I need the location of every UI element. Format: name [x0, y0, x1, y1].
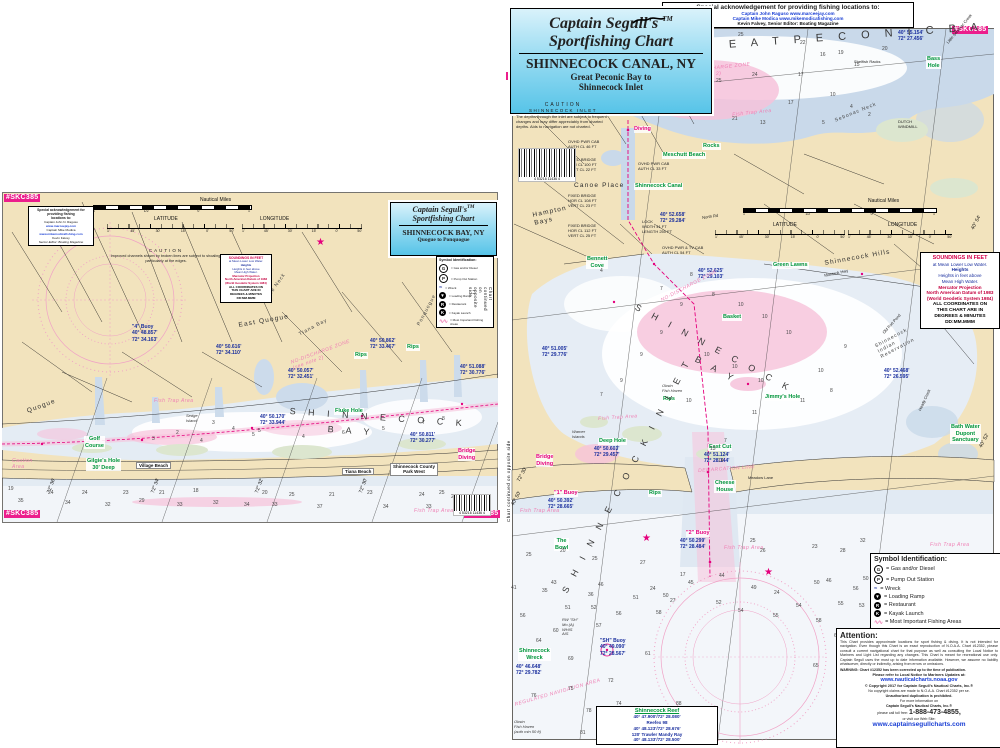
- kayak-launch-icon: K: [439, 309, 446, 316]
- scale-tick: 50': [229, 229, 234, 233]
- scale-lat-label: LATITUDE: [154, 216, 178, 222]
- caution-body: Improved channels shown by broken lines …: [110, 254, 222, 264]
- attention-body: This Chart provides approximate location…: [840, 640, 998, 667]
- scale-tick: 15': [908, 235, 913, 239]
- restaurant-icon: R: [439, 301, 446, 308]
- symbol-row: ≈= Wreck: [874, 586, 998, 592]
- scale-tick: 0: [871, 212, 873, 216]
- right-chart-subtitle: Great Peconic Bay to: [511, 72, 711, 82]
- gas-icon: G: [874, 565, 883, 574]
- symbol-label: = Pump Out Station: [886, 577, 934, 583]
- scale-tick: 1': [715, 235, 718, 239]
- scale-tick: 45': [739, 235, 744, 239]
- symbol-row: G= Gas and/or Diesel: [439, 264, 491, 273]
- scale-tick: 15': [312, 229, 317, 233]
- scale-tick: 0': [929, 235, 932, 239]
- side-note: Chart continued on opposite side: [468, 287, 493, 311]
- attention-title: Attention:: [840, 631, 998, 640]
- symbol-label: = Loading Ramp: [884, 594, 925, 600]
- scale-tick: 1/2: [805, 212, 810, 216]
- scale-tick: 1/2: [144, 209, 149, 213]
- segull-url: www.captainsegullcharts.com: [840, 721, 998, 728]
- trademark: TM: [467, 205, 475, 210]
- gas-icon: G: [439, 264, 448, 273]
- symbol-label: = Kayak Launch: [884, 611, 924, 617]
- symbol-label: = Restaurant: [449, 302, 466, 306]
- scale-nm-ticks: 11/201: [93, 209, 250, 213]
- reef-box: Shinnecock Reef 40° 47.900'/72° 28.080' …: [596, 706, 718, 745]
- kayak-launch-icon: K: [874, 610, 881, 617]
- soundings-line: DD:MM.MMM: [922, 320, 998, 326]
- symbol-label: = Most Important Fishing Areas: [450, 318, 491, 326]
- scale-tick: 0': [336, 229, 339, 233]
- symbol-label: = Kayak Launch: [449, 311, 471, 315]
- scale-tick: 30': [765, 235, 770, 239]
- right-symbol-list: G= Gas and/or DieselP= Pump Out Station≈…: [874, 565, 998, 626]
- brand-name: Captain Segull'sTM: [391, 205, 496, 214]
- reef-line: 40° 48.133'/72° 28.500': [600, 737, 714, 743]
- scale-lat-ticks: 1'45'30'15'0'50': [107, 229, 234, 233]
- fishing-area-icon: ∿∿: [874, 619, 882, 626]
- right-symbol-box: Symbol Identification: G= Gas and/or Die…: [870, 553, 1000, 629]
- scale-tick: 1: [933, 212, 935, 216]
- left-title-box: Captain Segull'sTM Sportfishing Chart SH…: [390, 202, 497, 256]
- ack-title: Special acknowledgement for providing fi…: [30, 208, 92, 220]
- gull-logo-icon: [631, 15, 667, 25]
- company-line: Captain Segull's Nautical Charts, Inc.®: [840, 704, 998, 708]
- attention-warning: WARNING: Chart #12352 has been corrected…: [840, 668, 998, 672]
- symbol-title: Symbol Identification:: [439, 258, 491, 262]
- scale-lat-label: LATITUDE: [773, 222, 797, 228]
- brand-name: Captain Segull's TM: [511, 15, 711, 33]
- scale-tick: 45': [130, 229, 135, 233]
- left-caution: CAUTION Improved channels shown by broke…: [110, 248, 222, 264]
- barcode-digits: 4 53216 11436 4: [459, 511, 485, 515]
- right-title-box: Captain Segull's TM Sportfishing Chart S…: [510, 8, 712, 114]
- soundings-line: ALL COORDINATES ON: [922, 302, 998, 308]
- barcode: 4 53216 11436 4: [453, 494, 491, 516]
- barcode-digits: 4 53216 11436 4: [534, 177, 560, 181]
- scale-tick: 1: [248, 209, 250, 213]
- symbol-label: = Wreck: [445, 286, 456, 290]
- scale-tick: 45': [264, 229, 269, 233]
- ack-line: Senior Editor: Boating Magazine: [30, 240, 92, 244]
- scale-tick: 30': [887, 235, 892, 239]
- copyright-line: © Copyright 2017 for Captain Segull's Na…: [840, 684, 998, 688]
- symbol-row: K= Kayak Launch: [874, 610, 998, 617]
- left-chart-title: SHINNECOCK BAY, NY: [391, 228, 496, 237]
- scale-tick: 50': [947, 235, 952, 239]
- scale-lon-ticks: 1'45'30'15'0'50': [242, 229, 362, 233]
- symbol-label: = Most Important Fishing Areas: [885, 619, 961, 625]
- loading-ramp-icon: ▼: [874, 593, 881, 600]
- left-acknowledgement-box: Special acknowledgement for providing fi…: [28, 206, 94, 246]
- symbol-label: = Gas and/or Diesel: [451, 266, 478, 270]
- symbol-row: P= Pump Out Station: [874, 575, 998, 584]
- left-soundings-box: SOUNDINGS IN FEET at Mean Lower Low Wate…: [220, 254, 272, 303]
- symbol-row: ▼= Loading Ramp: [874, 593, 998, 600]
- wreck-icon: ≈: [874, 586, 877, 592]
- scale-nm-ticks: 11/201: [743, 212, 935, 216]
- symbol-label: = Wreck: [880, 586, 900, 592]
- scale-nm-label: Nautical Miles: [868, 198, 899, 204]
- pump-out-icon: P: [874, 575, 883, 584]
- caution-title: CAUTION: [110, 248, 222, 253]
- barcode: 4 53216 11436 4: [518, 148, 576, 182]
- side-note: Chart continued on opposite side: [506, 440, 511, 522]
- scale-tick: 45': [867, 235, 872, 239]
- barcode-bars: [454, 495, 490, 511]
- scale-tick: 30': [156, 229, 161, 233]
- symbol-label: = Pump Out Station: [451, 277, 477, 281]
- loading-ramp-icon: ▼: [439, 292, 446, 299]
- scale-tick: 1': [848, 235, 851, 239]
- symbol-row: ∿∿= Most Important Fishing Areas: [874, 619, 998, 626]
- divider: [519, 53, 703, 54]
- screenshot: #SKC385#SKC385#SKC385"4" Buoy 40° 48.857…: [0, 0, 1000, 748]
- scale-lon-label: LONGITUDE: [260, 216, 289, 222]
- inlet-caution: CAUTION SHINNECOCK INLET The depths thro…: [516, 102, 610, 130]
- symbol-title: Symbol Identification:: [874, 556, 998, 563]
- brand-name: Sportfishing Chart: [391, 214, 496, 223]
- scale-tick: 0: [197, 209, 199, 213]
- right-chart-title: SHINNECOCK CANAL, NY: [511, 56, 711, 72]
- left-chart: #SKC385#SKC385#SKC385"4" Buoy 40° 48.857…: [2, 192, 498, 523]
- more-info-line: For more information on: [840, 699, 998, 703]
- dup-line: Unauthorized duplication is prohibited.: [840, 694, 998, 698]
- symbol-row: ∿∿= Most Important Fishing Areas: [439, 318, 491, 326]
- scale-tick: 50': [357, 229, 362, 233]
- phone-number: 1-888-473-4855,: [909, 709, 961, 716]
- soundings-title: SOUNDINGS IN FEET: [922, 255, 998, 262]
- left-chart-subtitle: Quogue to Ponquogue: [391, 237, 496, 243]
- caution-body: The depths through the inlet are subject…: [516, 114, 610, 130]
- fishing-area-icon: ∿∿: [439, 318, 447, 325]
- scale-tick: 15': [181, 229, 186, 233]
- right-chart: #SKC385#SKC38540° 55.154' 72° 27.456'40°…: [502, 2, 998, 746]
- right-chart-subtitle: Shinnecock Inlet: [511, 82, 711, 92]
- scale-tick: 1': [107, 229, 110, 233]
- divider: [399, 225, 488, 226]
- scale-tick: 50': [840, 235, 845, 239]
- scale-nm-label: Nautical Miles: [200, 197, 231, 203]
- no-claim-line: No copyright claims are made to N.O.A.A.…: [840, 689, 998, 693]
- attention-box: Attention: This Chart provides approxima…: [836, 628, 1000, 748]
- symbol-label: = Gas and/or Diesel: [886, 566, 935, 572]
- scale-lon-ticks: 1'45'30'15'0'50': [848, 235, 952, 239]
- barcode-bars: [519, 149, 575, 177]
- restaurant-icon: R: [874, 602, 881, 609]
- symbol-row: G= Gas and/or Diesel: [874, 565, 998, 574]
- wreck-icon: ≈: [439, 285, 442, 291]
- symbol-row: R= Restaurant: [874, 602, 998, 609]
- scale-tick: 1: [743, 212, 745, 216]
- brand-name: Sportfishing Chart: [511, 33, 711, 51]
- symbol-label: = Restaurant: [884, 602, 916, 608]
- scale-tick: 0': [817, 235, 820, 239]
- scale-tick: 30': [288, 229, 293, 233]
- scale-tick: 15': [791, 235, 796, 239]
- right-soundings-box: SOUNDINGS IN FEET at Mean Lower Low Wate…: [920, 252, 1000, 329]
- phone-line: please call toll free: 1-888-473-4855,: [840, 709, 998, 716]
- scale-lon-label: LONGITUDE: [888, 222, 917, 228]
- pump-out-icon: P: [439, 274, 448, 283]
- scale-tick: 0': [206, 229, 209, 233]
- scale-lat-ticks: 1'45'30'15'0'50': [715, 235, 845, 239]
- caution-subtitle: SHINNECOCK INLET: [516, 108, 610, 113]
- symbol-row: P= Pump Out Station: [439, 274, 491, 283]
- soundings-line: DD:MM.MMM: [222, 297, 270, 301]
- scale-tick: 1: [93, 209, 95, 213]
- scale-tick: 1': [242, 229, 245, 233]
- noaa-url: www.nauticalcharts.noaa.gov: [840, 677, 998, 683]
